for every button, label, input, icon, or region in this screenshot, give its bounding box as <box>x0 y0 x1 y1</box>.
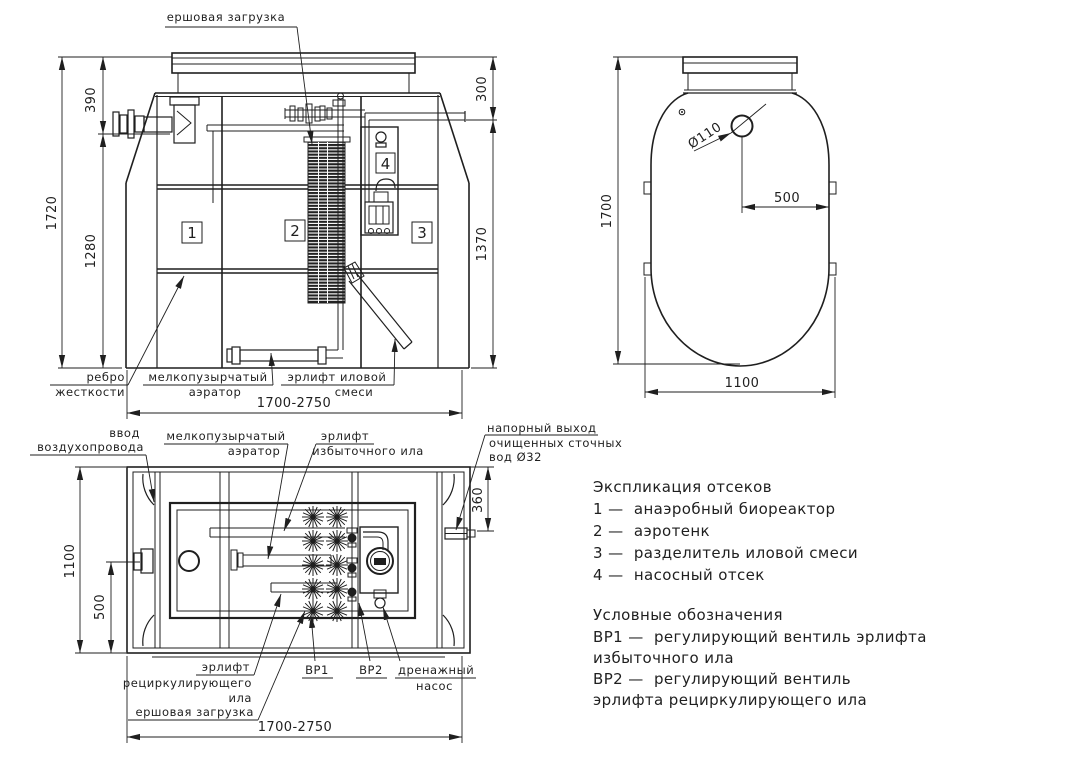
side-lid <box>683 57 797 93</box>
outlet-label-line2: очищенных сточных <box>489 436 622 450</box>
air-inlet-label-line2: воздухопровода <box>37 440 144 454</box>
plan-view: 1100 500 360 1700-2750 ввод воздухопрово… <box>30 421 622 743</box>
legend-item-1: 1 — анаэробный биореактор <box>593 500 835 518</box>
front-compartment4-box <box>361 127 398 235</box>
dim-390: 390 <box>84 87 99 113</box>
legend-symbols-title: Условные обозначения <box>593 606 783 624</box>
compartment-1-number: 1 <box>187 224 197 242</box>
front-dimensions: 1720 390 1280 300 1370 1700-2750 <box>45 57 497 419</box>
legend-item-2: 2 — аэротенк <box>593 522 710 540</box>
front-valve-cluster <box>320 93 345 120</box>
side-inlet-hole: Ø110 <box>686 104 766 152</box>
drain-pump-label-line1: дренажный <box>398 663 474 677</box>
float-switch-icon <box>376 132 386 147</box>
air-inlet-label-line1: ввод <box>109 426 140 440</box>
front-compartment-numbers: 1 2 3 4 <box>182 153 432 243</box>
plan-brush-stars <box>302 506 348 622</box>
septic-tank-drawing: 1 2 3 4 1720 390 1280 300 1370 <box>0 0 1080 772</box>
plan-aerator-label-line1: мелкопузырчатый <box>166 429 285 443</box>
aerator-label-line2: аэратор <box>189 385 242 399</box>
plan-inlet-circle <box>179 551 199 571</box>
dim-360: 360 <box>471 487 486 513</box>
dim-length-plan: 1700-2750 <box>258 720 332 735</box>
legend-item-4: 4 — насосный отсек <box>593 566 765 584</box>
dim-1370: 1370 <box>475 227 490 262</box>
side-view: Ø110 1700 500 1100 <box>600 57 836 398</box>
legend-item-3: 3 — разделитель иловой смеси <box>593 544 858 562</box>
recirc-airlift-label-line2: рециркулирующего <box>123 676 252 690</box>
outlet-label-line1: напорный выход <box>487 421 597 435</box>
front-inlet-pipe <box>113 97 199 143</box>
plan-pump-compartment <box>360 527 398 608</box>
plan-brush-load-label: ершовая загрузка <box>135 705 254 719</box>
legend-symbol-line-4: эрлифта рециркулирующего ила <box>593 691 867 709</box>
brush-load-label: ершовая загрузка <box>167 10 286 24</box>
dim-500-plan: 500 <box>93 594 108 620</box>
dim-1700: 1700 <box>600 194 615 229</box>
rib-label-line1: ребро <box>86 370 125 384</box>
technical-drawing-sheet: 1 2 3 4 1720 390 1280 300 1370 <box>0 0 1080 772</box>
compartment-3-number: 3 <box>417 224 427 242</box>
corner-gusset-tr <box>443 474 454 505</box>
dim-1280: 1280 <box>84 234 99 269</box>
plan-pipes <box>210 528 345 592</box>
dim-300: 300 <box>475 76 490 102</box>
sludge-airlift-label-line2: смеси <box>335 385 374 399</box>
legend-compartments-title: Экспликация отсеков <box>593 478 772 496</box>
plan-aerator-label-line2: аэратор <box>228 444 281 458</box>
dim-1720: 1720 <box>45 196 60 231</box>
legend-symbol-line-3: ВР2 — регулирующий вентиль <box>593 670 851 688</box>
recirc-airlift-label-line1: эрлифт <box>202 660 250 674</box>
front-aerator <box>227 347 343 364</box>
corner-gusset-bl <box>143 615 154 646</box>
valve-vr2-label: ВР2 <box>359 663 383 677</box>
side-dimensions: 1700 500 1100 <box>600 57 835 398</box>
legend-block: Экспликация отсеков 1 — анаэробный биоре… <box>593 478 927 709</box>
front-lid <box>172 53 415 93</box>
side-tank-body <box>644 93 836 366</box>
dim-500-side: 500 <box>774 191 800 206</box>
compartment-4-number: 4 <box>381 155 391 173</box>
outlet-label-line3: вод Ø32 <box>489 450 542 464</box>
valve-vr1-label: ВР1 <box>305 663 329 677</box>
compartment-2-number: 2 <box>290 222 300 240</box>
dim-1100-side: 1100 <box>725 376 760 391</box>
excess-sludge-airlift-label-line1: эрлифт <box>321 429 369 443</box>
aerator-label-line1: мелкопузырчатый <box>148 370 267 384</box>
dim-1100-plan: 1100 <box>63 544 78 579</box>
recirc-airlift-label-line3: ила <box>228 691 252 705</box>
dim-dia-110: Ø110 <box>686 120 725 153</box>
plan-left-port <box>134 549 153 573</box>
front-sludge-airlift-pipe <box>344 262 412 349</box>
rib-label-line2: жесткости <box>55 385 125 399</box>
excess-sludge-airlift-label-line2: избыточного ила <box>312 444 424 458</box>
drain-pump-label-line2: насос <box>416 679 453 693</box>
sludge-airlift-label-line1: эрлифт иловой <box>288 370 387 384</box>
front-view: 1 2 3 4 1720 390 1280 300 1370 <box>45 10 497 419</box>
plan-regulating-valves <box>347 528 357 601</box>
plan-callouts: ввод воздухопровода мелкопузырчатый аэра… <box>30 421 622 720</box>
legend-symbol-line-1: ВР1 — регулирующий вентиль эрлифта <box>593 628 927 646</box>
legend-symbol-line-2: избыточного ила <box>593 649 734 667</box>
dim-length-front: 1700-2750 <box>257 396 331 411</box>
corner-gusset-br <box>443 615 454 646</box>
